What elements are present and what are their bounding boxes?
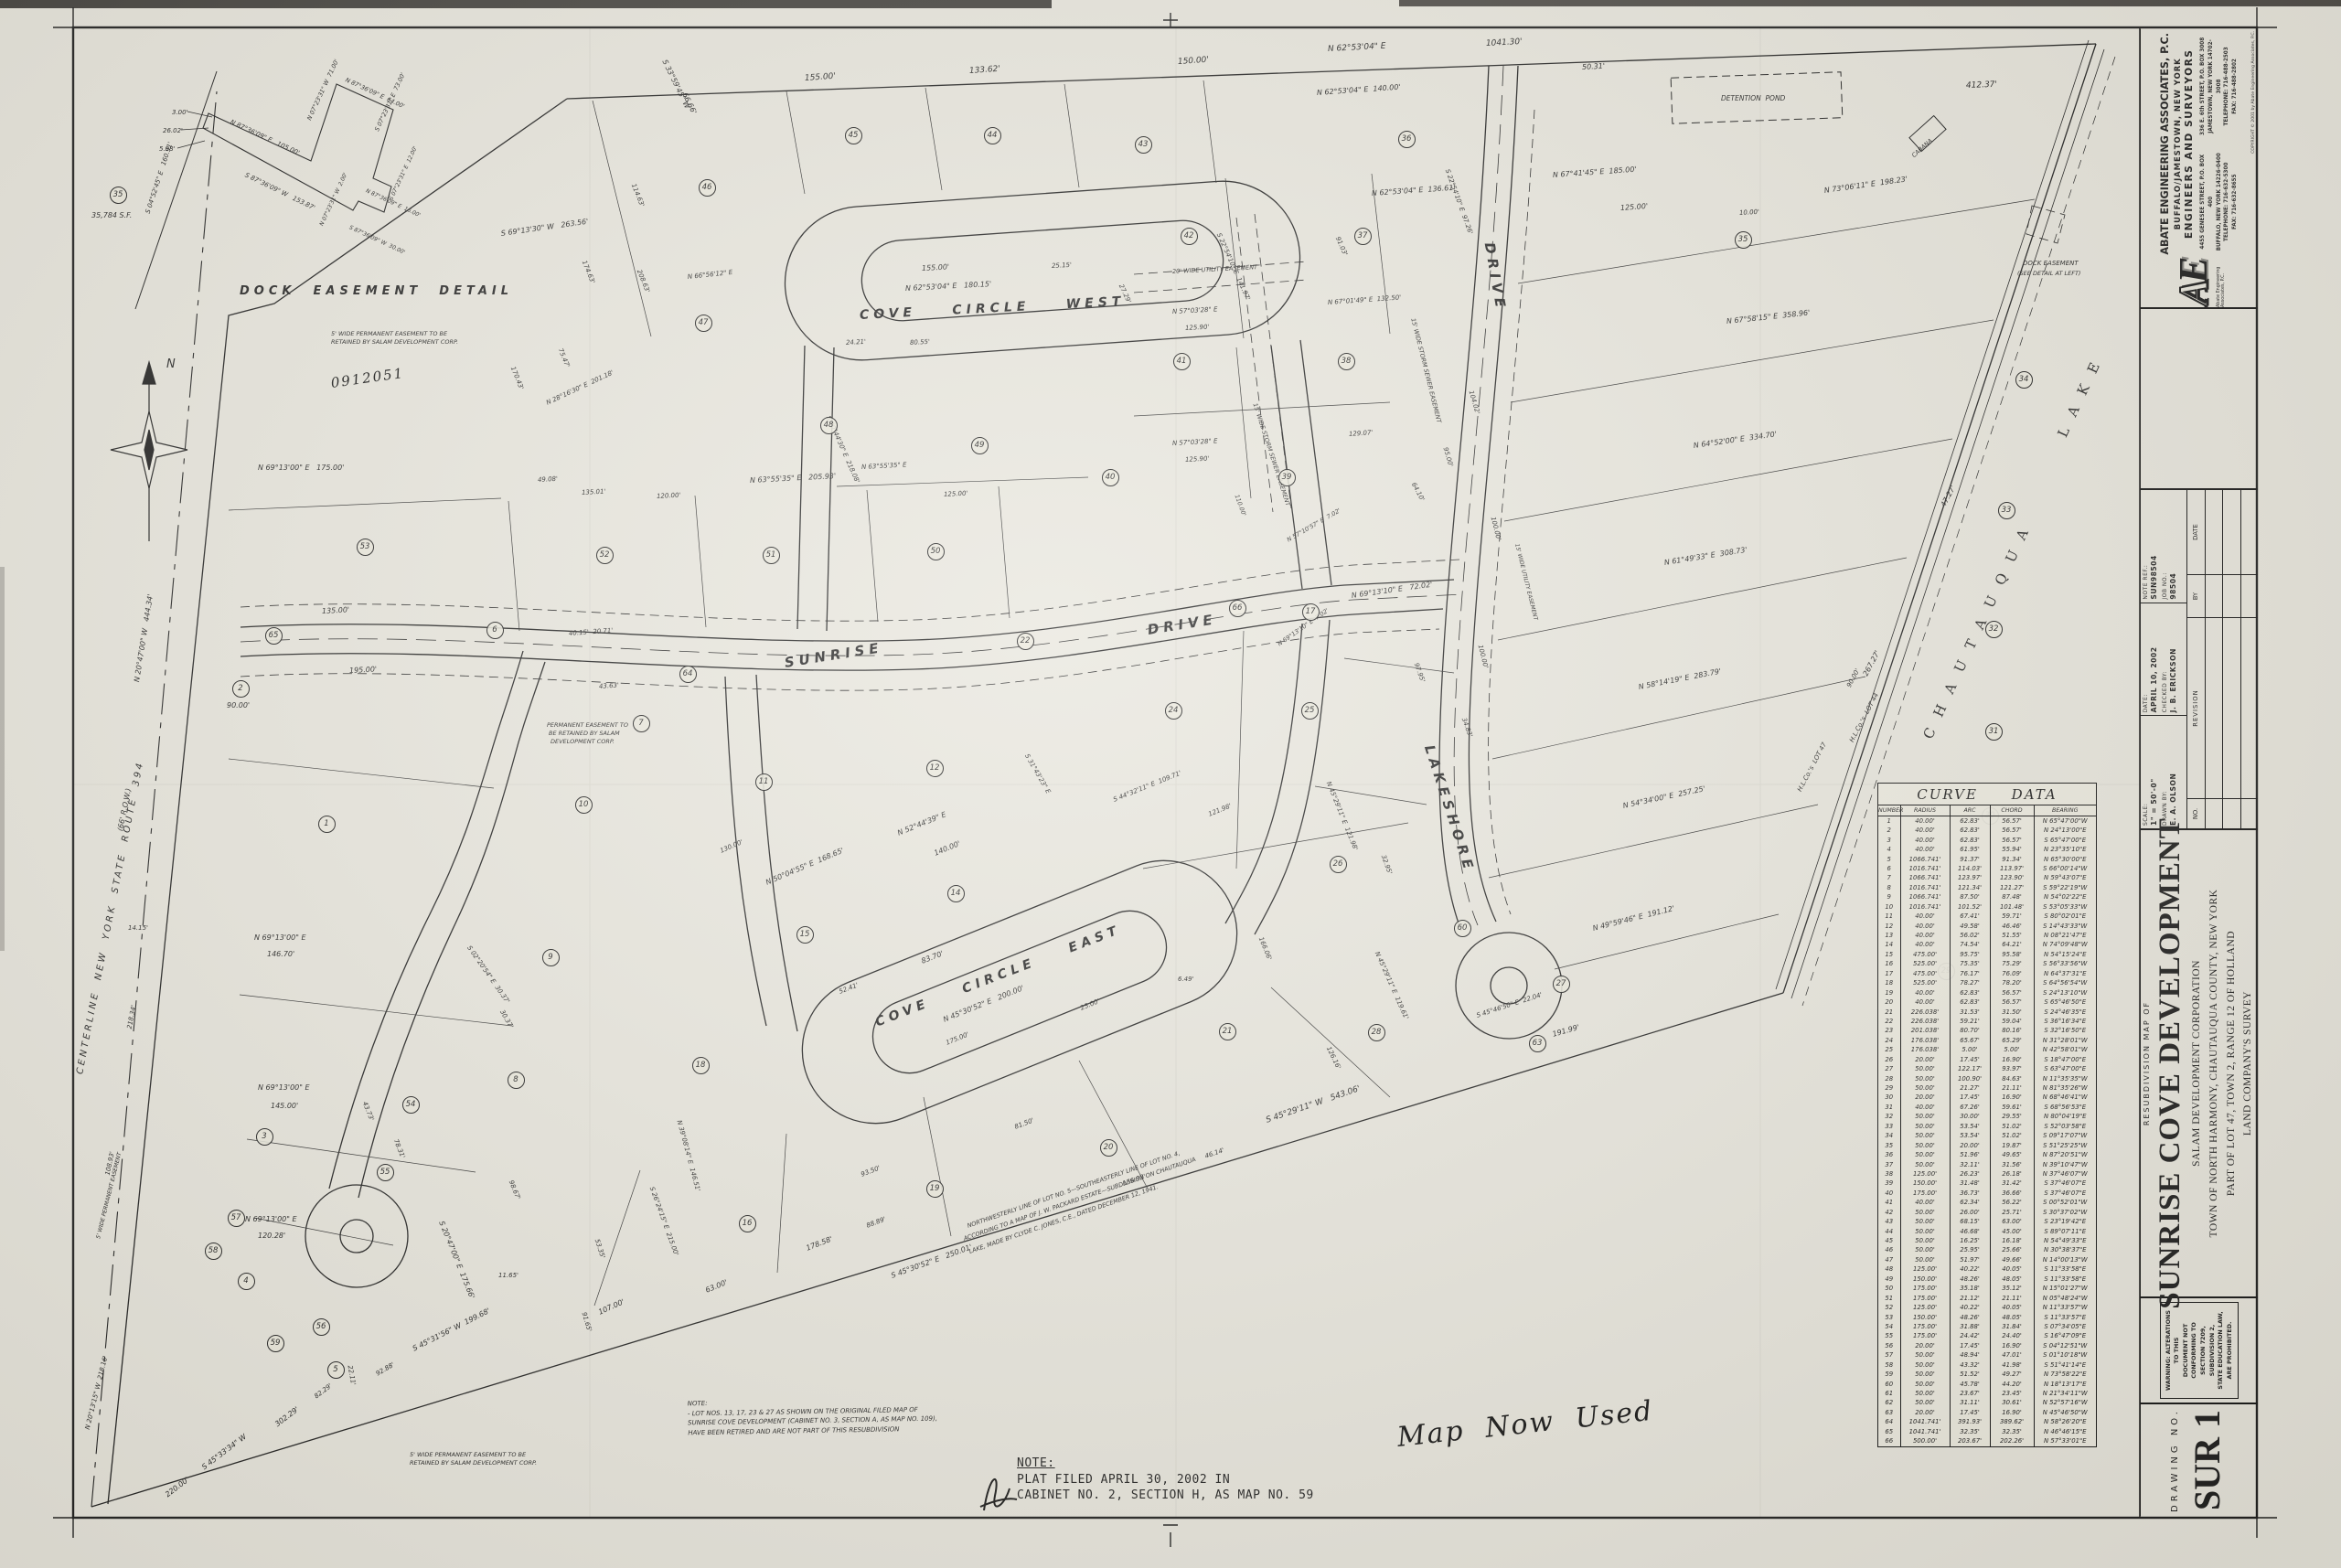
curve-cell: S 09°17'07"W: [2034, 1131, 2096, 1140]
curve-cell: 500.00': [1900, 1436, 1950, 1445]
curve-cell: N 31°28'01"W: [2034, 1036, 2096, 1045]
drawing-number-label: DRAWING NO.: [2170, 1408, 2180, 1512]
curve-cell: N 68°46'41"W: [2034, 1093, 2096, 1103]
map-annotation: 100.00': [1490, 517, 1502, 541]
curve-cell: 40.00': [1900, 1103, 1950, 1112]
info-grid: SCALE:1" = 50'-0"DRAWN BY:E. A. OLSONDAT…: [2141, 490, 2187, 828]
curve-cell: 21.12': [1950, 1294, 1990, 1303]
curve-row: 51066.741'91.37'91.34'N 65°30'00"E: [1878, 855, 2096, 864]
curve-cell: 40.00': [1900, 988, 1950, 997]
curve-cell: 100.90': [1950, 1074, 1990, 1083]
curve-cell: 44.20': [1990, 1380, 2034, 1389]
curve-cell: N 65°47'00"W: [2034, 816, 2096, 827]
curve-row: 6320.00'17.45'16.90'N 45°46'50"W: [1878, 1408, 2096, 1417]
map-annotation: 191.99': [1552, 1024, 1580, 1039]
map-annotation: N 07°23'31" W 2.00': [319, 172, 348, 227]
curve-cell: 40.05': [1990, 1265, 2034, 1275]
curve-cell: 59.04': [1990, 1017, 2034, 1026]
curve-cell: 49.27': [1990, 1370, 2034, 1379]
info-cell: DATE:APRIL 10, 2002CHECKED BY:J. B. ERIC…: [2141, 603, 2186, 716]
curve-cell: 17.45': [1950, 1093, 1990, 1103]
map-annotation: 63.00': [705, 1279, 729, 1295]
curve-cell: 40.00': [1900, 997, 1950, 1007]
map-annotation: 220.00': [165, 1477, 191, 1499]
curve-cell: 59.61': [1990, 1103, 2034, 1112]
curve-cell: 203.67': [1950, 1436, 1990, 1445]
curve-cell: 65.67': [1950, 1036, 1990, 1045]
map-annotation: S 45°46'50" E 22.04': [1476, 992, 1544, 1019]
drawing-number-block: DRAWING NO. SUR 1: [2141, 1403, 2258, 1516]
curve-cell: 46.68': [1950, 1227, 1990, 1236]
map-annotation: S 07°23'31" E 12.00': [389, 145, 419, 201]
curve-cell: 32: [1878, 1113, 1900, 1122]
curve-cell: 26.23': [1950, 1169, 1990, 1179]
info-value: SUN98504: [2150, 493, 2158, 600]
map-annotation: 135.01': [582, 489, 606, 496]
curve-cell: 40.22': [1950, 1265, 1990, 1275]
map-annotation: N 62°53'04" E 136.61': [1372, 185, 1456, 197]
address-line: 336 E. 6th STREET, P.O. BOX 3008: [2199, 33, 2207, 140]
street-label: COVE CIRCLE WEST: [860, 295, 1126, 322]
revision-empty-cell: [2223, 574, 2240, 617]
curve-row: 4140.00'62.34'56.22'S 00°52'01"W: [1878, 1199, 2096, 1208]
curve-cell: 175.00': [1900, 1284, 1950, 1293]
curve-cell: 50.00': [1900, 1113, 1950, 1122]
curve-cell: 28: [1878, 1074, 1900, 1083]
retired-lots-note: NOTE:- LOT NOS. 13, 17, 23 & 27 AS SHOWN…: [688, 1395, 938, 1438]
lot-number-circle: 54: [402, 1096, 420, 1114]
map-annotation: 218.34': [127, 1005, 138, 1029]
curve-cell: S 11°33'58"E: [2034, 1275, 2096, 1284]
curve-cell: 57: [1878, 1351, 1900, 1360]
map-annotation: 129.07': [1349, 430, 1374, 438]
curve-cell: 46: [1878, 1246, 1900, 1255]
lot-number-circle: 39: [1278, 469, 1296, 486]
curve-row: 440.00'61.95'55.94'N 23°35'10"E: [1878, 845, 2096, 854]
map-annotation: 24.21': [846, 339, 866, 347]
curve-cell: N 11°33'57"W: [2034, 1303, 2096, 1312]
lot-number-circle: 48: [820, 417, 838, 434]
curve-cell: 61.95': [1950, 845, 1990, 854]
map-annotation: S 69°13'30" W 263.56': [500, 219, 588, 238]
curve-cell: 35: [1878, 1141, 1900, 1150]
map-annotation: 53.35': [593, 1238, 605, 1259]
curve-cell: 20.00': [1900, 1093, 1950, 1103]
engineer-cities: BUFFALO/JAMESTOWN, NEW YORK: [2173, 58, 2182, 229]
lot-number-circle: 47: [695, 315, 712, 332]
curve-cell: S 36°16'34"E: [2034, 1017, 2096, 1026]
curve-cell: 23.45': [1990, 1389, 2034, 1398]
revision-table: NO.REVISIONBYDATE: [2187, 490, 2258, 828]
map-annotation: 170.43': [509, 366, 524, 390]
curve-cell: 50.00': [1900, 1370, 1950, 1379]
map-annotation: 178.58': [806, 1235, 834, 1252]
curve-cell: 475.00': [1900, 969, 1950, 978]
map-annotation: S 44°32'11" E 109.71': [1113, 770, 1182, 803]
curve-cell: 47.01': [1990, 1351, 2034, 1360]
curve-cell: 25.66': [1990, 1246, 2034, 1255]
curve-row: 25176.038'5.00'5.00'N 42°58'01"W: [1878, 1046, 2096, 1055]
map-annotation: N 57°03'28" E: [1172, 306, 1218, 315]
curve-row: 3350.00'53.54'51.02'S 52°03'58"E: [1878, 1122, 2096, 1131]
curve-cell: 23: [1878, 1027, 1900, 1036]
curve-cell: 67.26': [1950, 1103, 1990, 1112]
curve-cell: 48.26': [1950, 1275, 1990, 1284]
curve-row: 38125.00'26.23'26.18'N 37°46'07"W: [1878, 1169, 2096, 1179]
curve-cell: 226.038': [1900, 1017, 1950, 1026]
curve-cell: 65: [1878, 1427, 1900, 1436]
curve-row: 39150.00'31.48'31.42'S 37°46'07"E: [1878, 1179, 2096, 1189]
map-annotation: N 62°53'04" E: [1328, 43, 1386, 54]
development-title: SUNRISE COVE DEVELOPMENT: [2154, 817, 2187, 1308]
revision-empty-row: [2241, 490, 2259, 828]
curve-cell: 16.90': [1990, 1341, 2034, 1350]
map-annotation: 155.00': [805, 73, 837, 83]
curve-cell: 48.26': [1950, 1313, 1990, 1322]
lot-number-circle: 40: [1102, 469, 1119, 486]
lot-number-circle: 52: [596, 547, 614, 564]
lot-number-circle: 22: [1017, 633, 1034, 650]
curve-cell: 44: [1878, 1227, 1900, 1236]
curve-cell: S 30°37'02"W: [2034, 1208, 2096, 1217]
lot-number-circle: 15: [796, 926, 814, 944]
lot-number-circle: 24: [1165, 702, 1182, 720]
lot-number-circle: 12: [926, 760, 944, 777]
curve-cell: 1041.741': [1900, 1427, 1950, 1436]
curve-cell: 51.96': [1950, 1150, 1990, 1159]
curve-cell: 31.84': [1990, 1322, 2034, 1331]
lot-number-circle: 26: [1330, 856, 1347, 873]
plat-note-line: CABINET NO. 2, SECTION H, AS MAP NO. 59: [1017, 1488, 1314, 1504]
lot-number-circle: 27: [1553, 976, 1570, 993]
curve-cell: 1016.741': [1900, 864, 1950, 873]
map-annotation: 78.31': [392, 1138, 406, 1159]
map-annotation: 100.00': [1477, 645, 1489, 669]
curve-cell: 14: [1878, 941, 1900, 950]
curve-row: 5950.00'51.52'49.27'N 73°58'22"E: [1878, 1370, 2096, 1379]
curve-cell: 24.40': [1990, 1332, 2034, 1341]
info-cell: NOTE REF.:SUN98504JOB NO.:98504: [2141, 490, 2186, 603]
curve-cell: 17.45': [1950, 1055, 1990, 1064]
curve-cell: 56.22': [1990, 1199, 2034, 1208]
curve-cell: 13: [1878, 931, 1900, 940]
curve-row: 5750.00'48.94'47.01'S 01°10'18"W: [1878, 1351, 2096, 1360]
curve-cell: 34: [1878, 1131, 1900, 1140]
curve-cell: S 11°33'57"E: [2034, 1313, 2096, 1322]
curve-row: 51175.00'21.12'21.11'N 05°48'24"W: [1878, 1294, 2096, 1303]
curve-row: 4250.00'26.00'25.71'S 30°37'02"W: [1878, 1208, 2096, 1217]
warning-line: WARNING: ALTERATIONS TO THIS: [2165, 1306, 2182, 1395]
curve-cell: 26: [1878, 1055, 1900, 1064]
street-label: DRIVE: [1482, 241, 1508, 313]
curve-row: 3140.00'67.26'59.61'S 68°56'53"E: [1878, 1103, 2096, 1112]
map-annotation: 52.41': [839, 982, 860, 995]
map-annotation: 3.00': [172, 110, 188, 116]
curve-cell: 91.37': [1950, 855, 1990, 864]
map-annotation: DETENTION POND: [1721, 95, 1785, 102]
curve-cell: 56.02': [1950, 931, 1990, 940]
curve-column-header: BEARING: [2034, 805, 2096, 816]
engineer-role: ENGINEERS AND SURVEYORS: [2184, 49, 2195, 240]
developer-name: SALAM DEVELOPMENT CORPORATION: [2190, 960, 2205, 1167]
curve-cell: 59.71': [1990, 912, 2034, 921]
map-annotation: N 58°14'19" E 283.79': [1638, 668, 1722, 691]
curve-row: 1940.00'62.83'56.57'S 24°13'10"W: [1878, 988, 2096, 997]
map-annotation: 174.63': [581, 260, 595, 284]
map-annotation: 26.02': [163, 128, 183, 134]
curve-cell: 25: [1878, 1046, 1900, 1055]
curve-cell: 40.00': [1900, 836, 1950, 845]
curve-row: 22226.038'59.21'59.04'S 36°16'34"E: [1878, 1017, 2096, 1026]
curve-cell: 50: [1878, 1284, 1900, 1293]
curve-cell: 16.18': [1990, 1236, 2034, 1245]
curve-cell: S 52°03'58"E: [2034, 1122, 2096, 1131]
map-annotation: 5' WIDE PERMANENT EASEMENT TO BE: [331, 331, 447, 337]
curve-cell: 202.26': [1990, 1436, 2034, 1445]
curve-cell: 56.57': [1990, 826, 2034, 835]
curve-cell: 76.17': [1950, 969, 1990, 978]
map-annotation: 22.11': [347, 1365, 357, 1386]
map-annotation: 5' WIDE PERMANENT EASEMENT TO BE: [410, 1452, 526, 1458]
curve-cell: 50.00': [1900, 1141, 1950, 1150]
revision-empty-cell: [2206, 574, 2223, 617]
curve-column-header: ARC: [1950, 805, 1990, 816]
map-annotation: 155.00': [922, 263, 950, 272]
curve-cell: 62: [1878, 1399, 1900, 1408]
curve-cell: 31.48': [1950, 1179, 1990, 1189]
map-annotation: 15' WIDE STORM SEWER EASEMENT: [1252, 402, 1291, 507]
curve-cell: 50.00': [1900, 1208, 1950, 1217]
survey-line: LAND COMPANY'S SURVEY: [2241, 991, 2256, 1136]
map-annotation: 110.00': [1234, 494, 1246, 517]
curve-cell: 150.00': [1900, 1275, 1950, 1284]
map-annotation: 50.31': [1582, 63, 1605, 71]
curve-cell: 48.05': [1990, 1313, 2034, 1322]
curve-cell: 26.00': [1950, 1208, 1990, 1217]
info-label: CHECKED BY:: [2162, 606, 2168, 713]
lot-number-circle: 6: [486, 622, 504, 639]
curve-cell: 62.34': [1950, 1199, 1990, 1208]
info-value: 1" = 50'-0": [2150, 719, 2158, 826]
lot-number-circle: 49: [971, 437, 989, 454]
curve-row: 15475.00'95.75'95.58'N 54°15'24"E: [1878, 950, 2096, 959]
curve-row: 81016.741'121.34'121.27'S 59°22'19"W: [1878, 883, 2096, 892]
map-annotation: N 57°10'57" E 7.02': [1286, 507, 1342, 543]
curve-cell: 87.48': [1990, 893, 2034, 902]
curve-cell: 50.00': [1900, 1255, 1950, 1264]
curve-row: 91066.741'87.50'87.48'N 54°02'22"E: [1878, 893, 2096, 902]
curve-cell: 40.00': [1900, 912, 1950, 921]
curve-cell: 41: [1878, 1199, 1900, 1208]
curve-cell: 46.46': [1990, 922, 2034, 931]
map-annotation: 114.63': [630, 183, 645, 208]
map-annotation: N 73°06'11" E 198.23': [1823, 176, 1908, 195]
curve-cell: 18: [1878, 978, 1900, 987]
curve-cell: 50.00': [1900, 1074, 1950, 1083]
curve-cell: 95.75': [1950, 950, 1990, 959]
map-annotation: 34.83': [1460, 717, 1473, 738]
lot-number-circle: 35: [1735, 231, 1752, 249]
curve-cell: S 59°22'19"W: [2034, 883, 2096, 892]
map-annotation: S 45°30'52" E 250.01': [891, 1243, 974, 1279]
curve-cell: 78.20': [1990, 978, 2034, 987]
curve-cell: 22: [1878, 1017, 1900, 1026]
curve-cell: 40.05': [1990, 1303, 2034, 1312]
lot-number-circle: 28: [1368, 1024, 1385, 1041]
lot-number-circle: 9: [542, 949, 560, 966]
plat-note-line: NOTE:: [1017, 1456, 1314, 1472]
map-annotation: S 26°24'15" E 215.00': [648, 1186, 679, 1256]
map-annotation: 195.00': [349, 666, 378, 675]
curve-cell: N 11°35'35"W: [2034, 1074, 2096, 1083]
curve-cell: 31.53': [1950, 1008, 1990, 1017]
curve-cell: 49.65': [1990, 1150, 2034, 1159]
curve-cell: 80.16': [1990, 1027, 2034, 1036]
curve-cell: 41.98': [1990, 1360, 2034, 1370]
title-panel: DRAWING NO. SUR 1 WARNING: ALTERATIONS T…: [2140, 29, 2257, 1516]
curve-table-header: NUMBERRADIUSARCCHORDBEARING: [1878, 805, 2096, 816]
map-annotation: 43.63': [599, 682, 619, 690]
curve-cell: 56.57': [1990, 988, 2034, 997]
curve-cell: 6: [1878, 864, 1900, 873]
curve-data-table: CURVE DATA NUMBERRADIUSARCCHORDBEARING 1…: [1877, 783, 2097, 1447]
curve-cell: 36: [1878, 1150, 1900, 1159]
curve-cell: 50.00': [1900, 1150, 1950, 1159]
curve-cell: 53: [1878, 1313, 1900, 1322]
lot-number-circle: 10: [575, 796, 593, 814]
map-annotation: N 69°13'00" E: [245, 1216, 297, 1223]
lot-number-circle: 43: [1135, 136, 1152, 154]
curve-cell: 50.00': [1900, 1351, 1950, 1360]
curve-cell: N 54°49'33"E: [2034, 1236, 2096, 1245]
curve-cell: 31.11': [1950, 1399, 1990, 1408]
curve-row: 1140.00'67.41'59.71'S 80°02'01"E: [1878, 912, 2096, 921]
curve-cell: 84.63': [1990, 1074, 2034, 1083]
map-annotation: 302.29': [274, 1406, 301, 1429]
lot-number-circle: 37: [1354, 228, 1372, 245]
curve-cell: S 51°41'14"E: [2034, 1360, 2096, 1370]
map-annotation: 267.27': [1862, 649, 1881, 677]
curve-cell: N 14°00'13"W: [2034, 1255, 2096, 1264]
curve-cell: S 24°13'10"W: [2034, 988, 2096, 997]
map-annotation: 32.95': [1380, 854, 1393, 875]
curve-cell: S 68°56'53"E: [2034, 1103, 2096, 1112]
curve-cell: 29: [1878, 1083, 1900, 1093]
map-annotation: CABANA: [1911, 138, 1934, 159]
map-annotation: 88.89': [866, 1216, 887, 1229]
info-value: APRIL 10, 2002: [2150, 606, 2158, 713]
curve-cell: 52: [1878, 1303, 1900, 1312]
curve-cell: 33: [1878, 1122, 1900, 1131]
curve-cell: 66: [1878, 1436, 1900, 1445]
curve-row: 140.00'62.83'56.57'N 65°47'00"W: [1878, 816, 2096, 827]
info-revision-block: SCALE:1" = 50'-0"DRAWN BY:E. A. OLSONDAT…: [2141, 488, 2258, 828]
warning-line: SECTION 7209, SUBDIVISION 2,: [2199, 1306, 2217, 1395]
engineer-block: AE Abate Engineering Associates, P.C. AB…: [2141, 29, 2258, 309]
map-annotation: 47.27': [1940, 485, 1957, 508]
curve-cell: 75.35': [1950, 960, 1990, 969]
map-annotation: 91.65': [581, 1312, 593, 1333]
curve-column-header: CHORD: [1990, 805, 2034, 816]
ae-logo-icon: AE: [2174, 256, 2214, 305]
curve-cell: 51.02': [1990, 1131, 2034, 1140]
map-annotation: 93.50': [861, 1165, 882, 1178]
map-annotation: N 67°41'45" E 185.00': [1553, 166, 1637, 179]
curve-cell: N 80°04'19"E: [2034, 1113, 2096, 1122]
curve-cell: 10: [1878, 902, 1900, 912]
street-label: SUNRISE: [784, 641, 884, 670]
curve-cell: 74.54': [1950, 941, 1990, 950]
map-annotation: 125.00': [944, 491, 968, 498]
curve-cell: 20: [1878, 997, 1900, 1007]
map-annotation: 25.00': [1080, 998, 1101, 1012]
curve-cell: 20.00': [1900, 1055, 1950, 1064]
curve-cell: 19: [1878, 988, 1900, 997]
lot-number-circle: 14: [947, 885, 965, 902]
curve-cell: 50.00': [1900, 1122, 1950, 1131]
map-annotation: 121.98': [1208, 803, 1233, 817]
curve-row: 4550.00'16.25'16.18'N 54°49'33"E: [1878, 1236, 2096, 1245]
curve-cell: N 39°10'47"W: [2034, 1160, 2096, 1169]
curve-cell: 175.00': [1900, 1322, 1950, 1331]
curve-cell: 150.00': [1900, 1179, 1950, 1189]
curve-cell: S 18°47'00"E: [2034, 1055, 2096, 1064]
map-annotation: N 07°23'31" W 71.00': [306, 59, 340, 122]
curve-row: 17475.00'76.17'76.09'N 64°37'31"E: [1878, 969, 2096, 978]
map-annotation: (SEE DETAIL AT LEFT): [2017, 271, 2080, 277]
revision-empty-row: [2223, 490, 2241, 828]
curve-cell: 1066.741': [1900, 874, 1950, 883]
map-annotation: S 45°31'56" W 199.68': [412, 1307, 491, 1353]
curve-cell: 125.00': [1900, 1169, 1950, 1179]
curve-cell: 121.34': [1950, 883, 1990, 892]
map-annotation: 120.00': [657, 493, 681, 500]
revision-header-cell: DATE: [2187, 490, 2205, 574]
map-annotation: 10.00': [1739, 209, 1759, 217]
curve-cell: S 16°47'09"E: [2034, 1332, 2096, 1341]
lot-description-line: PART OF LOT 47, TOWN 2, RANGE 12 OF HOLL…: [2225, 931, 2239, 1196]
map-annotation: N 45°29'11" E 119.61': [1374, 951, 1409, 1020]
map-annotation: 95.00': [1442, 447, 1454, 468]
revision-header-cell: NO.: [2187, 798, 2205, 828]
curve-cell: 4: [1878, 845, 1900, 854]
curve-cell: N 87°20'51"W: [2034, 1150, 2096, 1159]
curve-cell: N 08°21'47"E: [2034, 931, 2096, 940]
map-annotation: N: [166, 358, 176, 370]
curve-cell: 78.27': [1950, 978, 1990, 987]
curve-cell: 525.00': [1900, 960, 1950, 969]
map-annotation: N 63°55'35" E: [861, 462, 907, 471]
address-line: BUFFALO, NEW YORK 14226-0400: [2216, 149, 2224, 255]
curve-cell: 50.00': [1900, 1217, 1950, 1226]
curve-cell: 62.83': [1950, 836, 1990, 845]
curve-cell: 123.97': [1950, 874, 1990, 883]
map-annotation: RETAINED BY SALAM DEVELOPMENT CORP.: [331, 339, 458, 346]
curve-cell: 121.27': [1990, 883, 2034, 892]
curve-cell: 175.00': [1900, 1332, 1950, 1341]
curve-cell: 32.35': [1950, 1427, 1990, 1436]
lot-number-circle: 53: [357, 539, 374, 556]
curve-cell: 31.56': [1990, 1160, 2034, 1169]
curve-cell: S 01°10'18"W: [2034, 1351, 2096, 1360]
map-annotation: S 22°54'10" E 97.26': [1444, 168, 1473, 235]
revision-empty-cell: [2241, 798, 2259, 828]
map-annotation: S 20°47'00" E 175.66': [437, 1221, 475, 1300]
map-annotation: 80.55': [910, 339, 930, 347]
curve-cell: 1016.741': [1900, 883, 1950, 892]
lot-number-circle: 19: [926, 1180, 944, 1198]
revision-empty-cell: [2241, 490, 2259, 574]
